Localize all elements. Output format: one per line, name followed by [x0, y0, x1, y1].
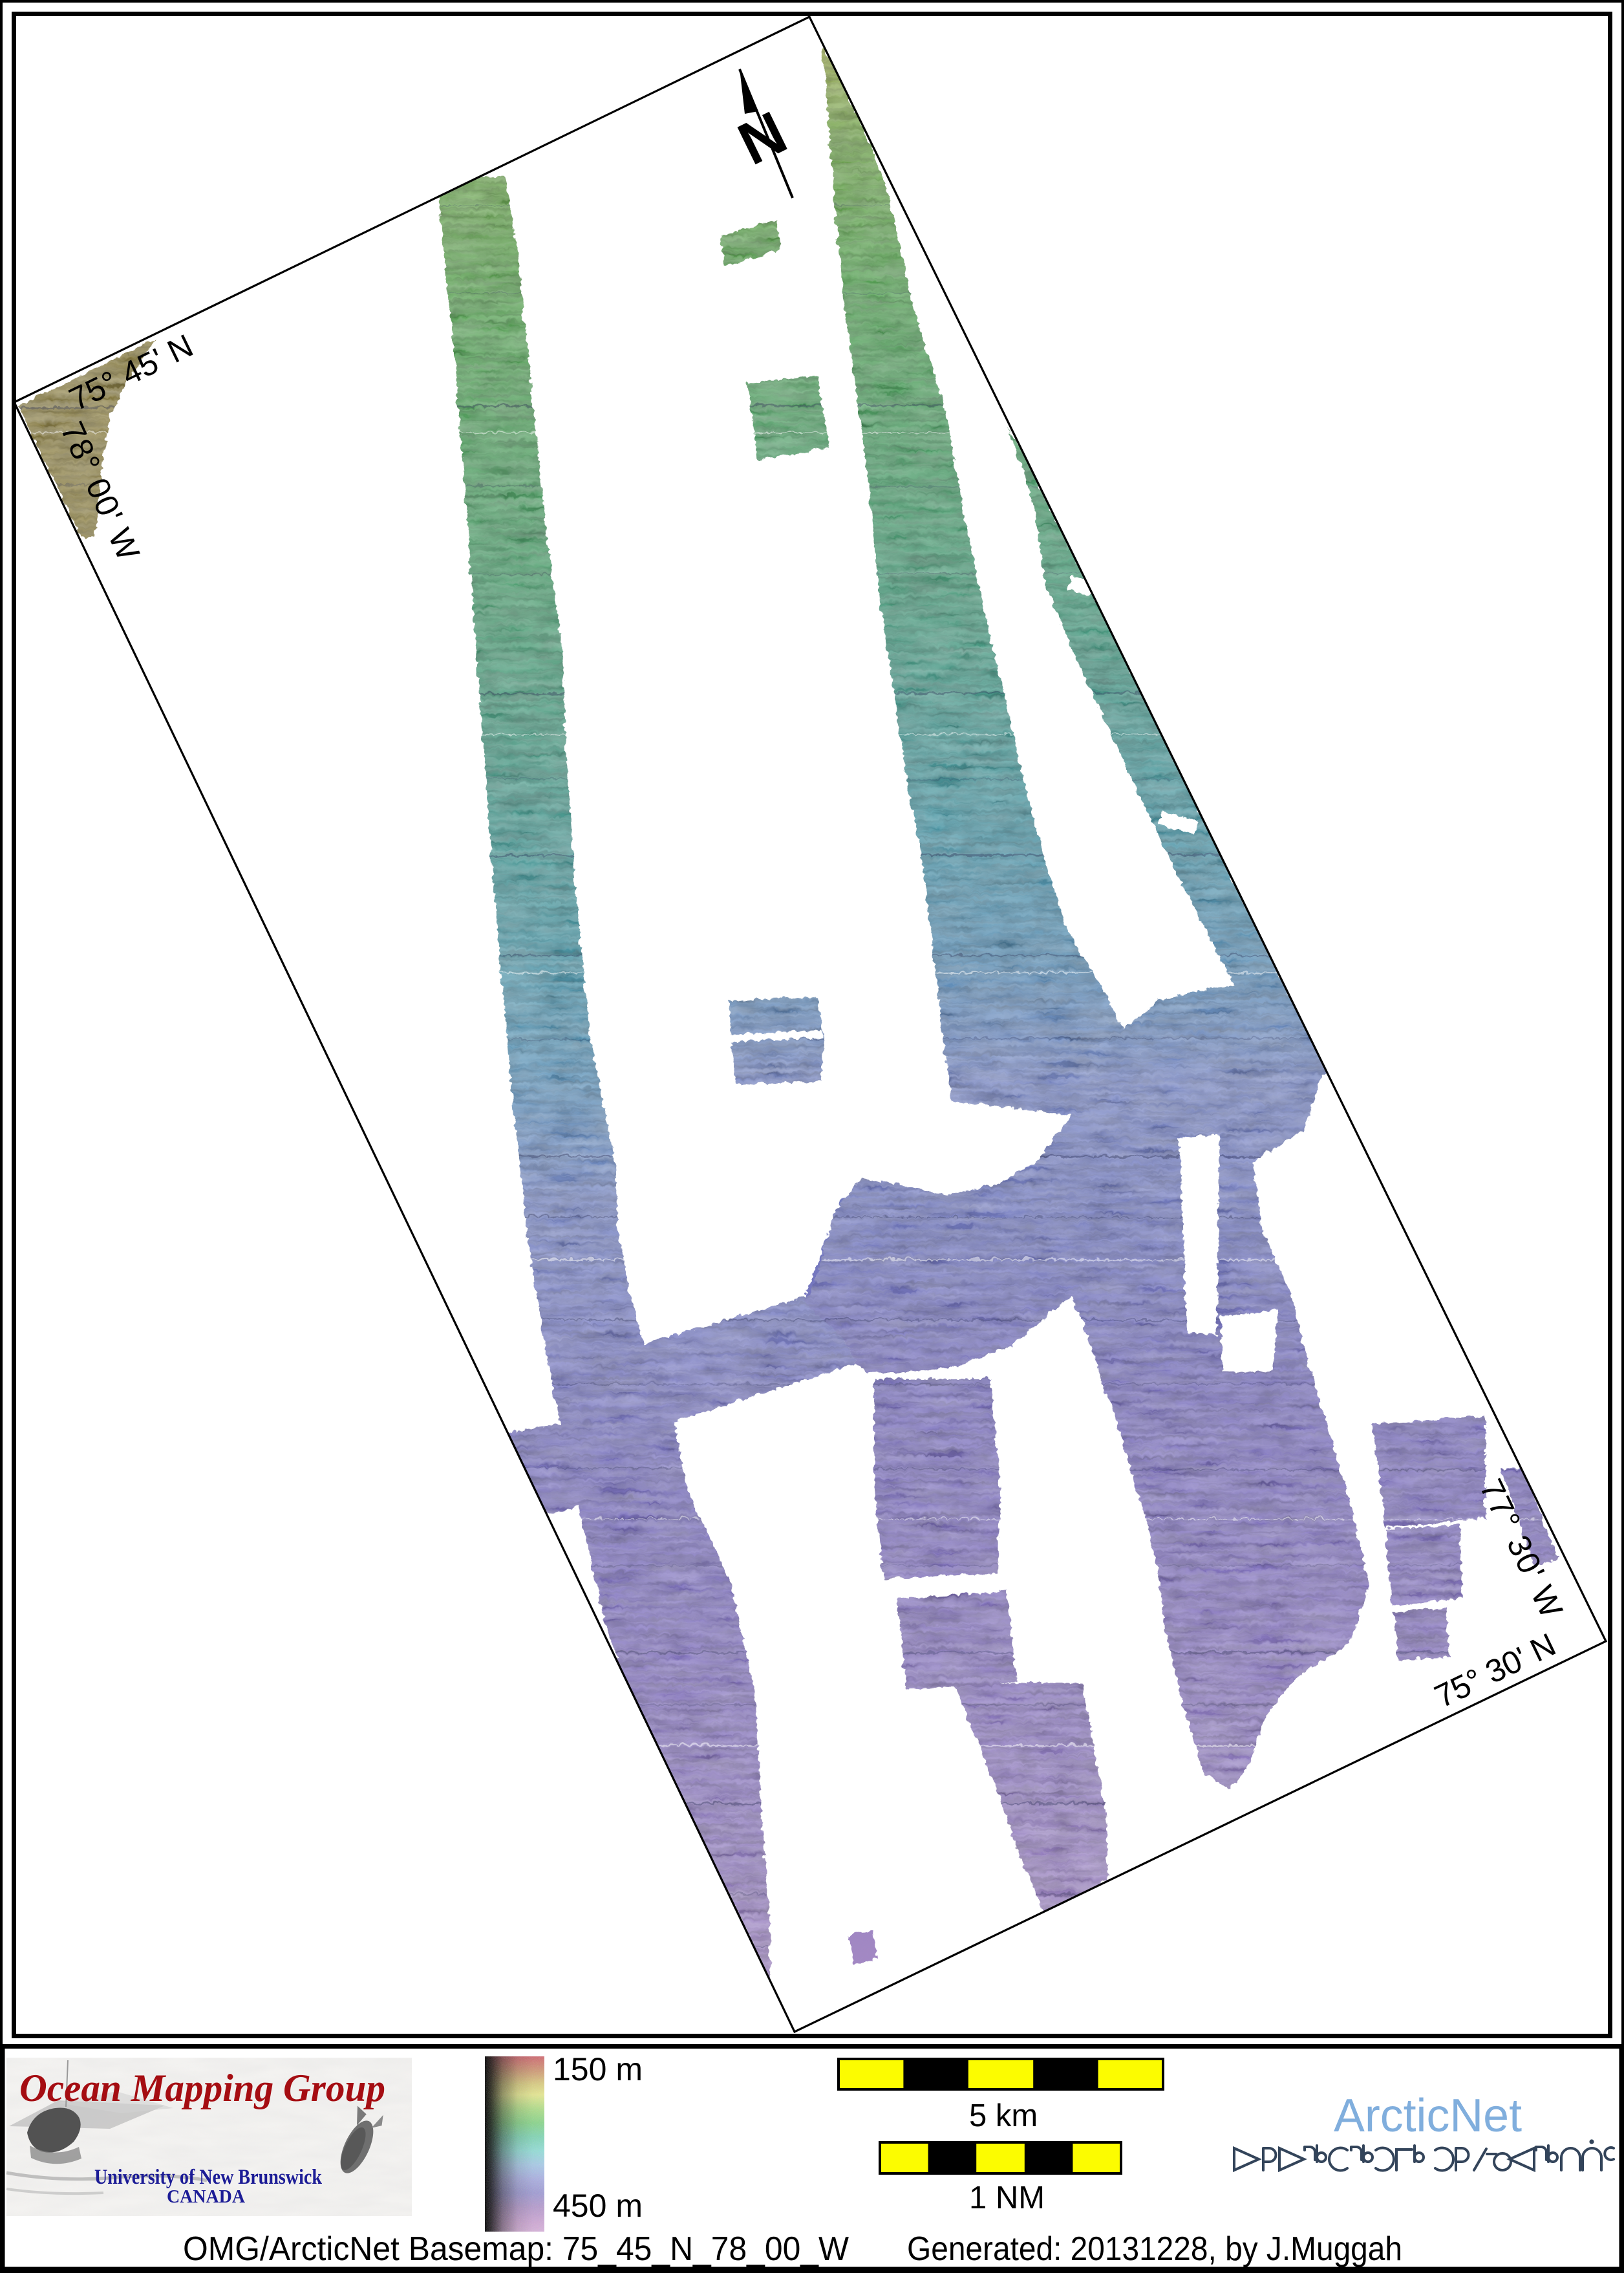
svg-text:Generated: 20131228, by J.Mugg: Generated: 20131228, by J.Muggah — [907, 2230, 1402, 2268]
svg-text:450 m: 450 m — [553, 2188, 643, 2224]
svg-text:Ocean Mapping Group: Ocean Mapping Group — [19, 2067, 385, 2109]
svg-text:5 km: 5 km — [969, 2098, 1038, 2133]
svg-text:OMG/ArcticNet Basemap: 75_45_N: OMG/ArcticNet Basemap: 75_45_N_78_00_W — [183, 2230, 849, 2268]
svg-text:ArcticNet: ArcticNet — [1334, 2090, 1522, 2142]
svg-text:CANADA: CANADA — [167, 2187, 245, 2207]
svg-text:University of New Brunswick: University of New Brunswick — [94, 2166, 323, 2189]
svg-text:150 m: 150 m — [553, 2051, 643, 2087]
svg-text:1 NM: 1 NM — [969, 2181, 1045, 2215]
